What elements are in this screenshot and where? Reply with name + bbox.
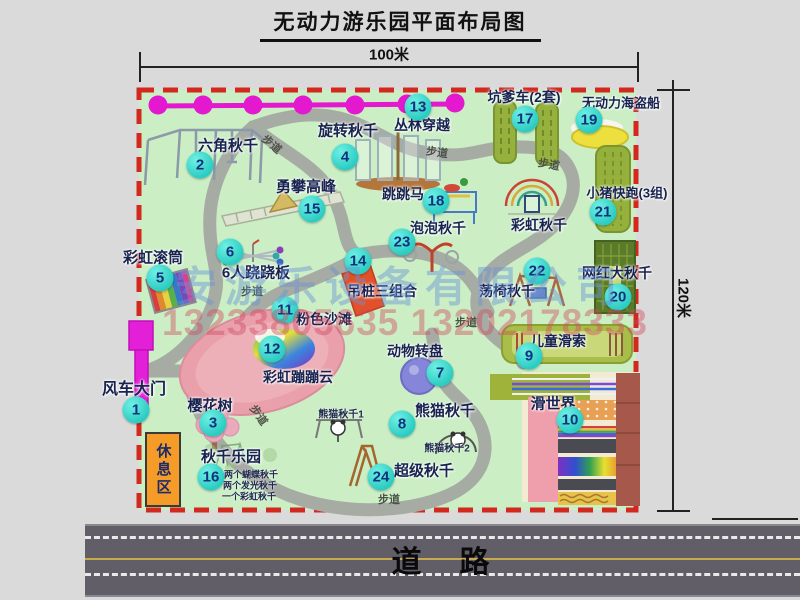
rotating-swing-badge: 4: [332, 144, 359, 171]
bubble-swing-badge: 23: [389, 229, 416, 256]
jumping-horse-badge: 18: [423, 188, 450, 215]
note-label-5: 一个彩虹秋千: [222, 490, 276, 503]
pit-cart-badge: 17: [512, 106, 539, 133]
kids-zipline-badge: 9: [516, 343, 543, 370]
dim-width-label: 100米: [369, 44, 409, 65]
jumping-horse-label: 跳跳马: [382, 184, 424, 204]
note-label-1: 熊猫秋千1: [318, 406, 364, 421]
cherry-tree-badge: 3: [200, 410, 227, 437]
super-swing-badge: 24: [368, 464, 395, 491]
swing-paradise-badge: 16: [198, 464, 225, 491]
panda-swing-badge: 8: [389, 411, 416, 438]
dim-width-line: [140, 66, 638, 68]
climbing-peak-badge: 15: [299, 196, 326, 223]
climbing-peak-label: 勇攀高峰: [276, 176, 336, 197]
windmill-gate-badge: 1: [123, 397, 150, 424]
footpath-label-6: 步道: [378, 491, 400, 507]
road: 道 路: [85, 524, 800, 597]
rainbow-cloud-label: 彩虹蹦蹦云: [263, 367, 333, 387]
note-label-2: 熊猫秋千2: [424, 440, 470, 455]
dim-width-tick-right: [637, 52, 639, 82]
rainbow-roller-badge: 5: [147, 265, 174, 292]
park-layout-page: 无动力游乐园平面布局图 100米 120米: [0, 0, 800, 600]
dim-width-tick-left: [139, 52, 141, 82]
animal-turntable-label: 动物转盘: [387, 341, 443, 361]
page-title: 无动力游乐园平面布局图: [0, 6, 800, 42]
pit-cart-label: 坑爹车(2套): [487, 87, 560, 107]
footpath-label-2: 步道: [425, 143, 449, 162]
jungle-crossing-badge: 13: [405, 94, 432, 121]
corner-line: [712, 518, 798, 520]
bubble-swing-label: 泡泡秋千: [410, 218, 466, 238]
watermark-phone: 13233805635 13202178333: [162, 302, 648, 344]
rotating-swing-icon: [356, 132, 440, 191]
super-swing-label: 超级秋千: [394, 460, 454, 481]
rest-area: 休息区: [145, 432, 181, 507]
hexagon-swing-label: 六角秋千: [198, 135, 258, 156]
animal-turntable-badge: 7: [427, 360, 454, 387]
panda-swing-label: 熊猫秋千: [415, 400, 475, 421]
road-label: 道 路: [85, 537, 800, 581]
windmill-gate-label: 风车大门: [102, 375, 166, 399]
rest-area-label: 休息区: [153, 443, 174, 497]
slide-world-badge: 10: [557, 407, 584, 434]
piggy-run-badge: 21: [590, 199, 617, 226]
dim-height-tick-bottom: [657, 510, 690, 512]
hexagon-swing-badge: 2: [187, 152, 214, 179]
dim-height-label: 120米: [674, 278, 695, 318]
rainbow-swing-label: 彩虹秋千: [511, 215, 567, 235]
rotating-swing-label: 旋转秋千: [318, 120, 378, 141]
pirate-ship-badge: 19: [576, 107, 603, 134]
dim-height-tick-top: [657, 89, 690, 91]
page-title-text: 无动力游乐园平面布局图: [260, 6, 541, 42]
